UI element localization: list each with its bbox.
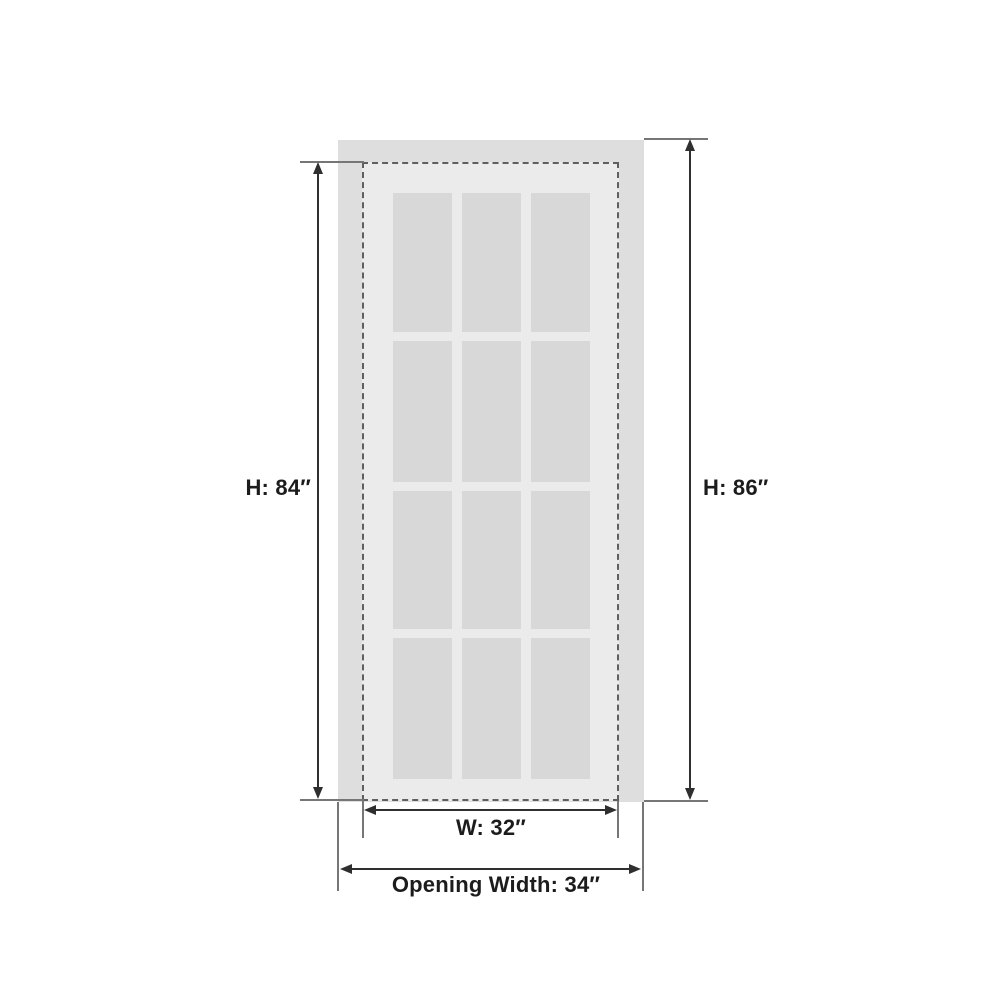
glass-pane-5 — [462, 341, 521, 482]
arrow-right-icon — [605, 805, 617, 815]
glass-pane-2 — [462, 193, 521, 332]
glass-pane-11 — [462, 638, 521, 779]
dimension-tick-bottom — [300, 799, 364, 801]
glass-pane-grid — [393, 193, 590, 779]
glass-pane-8 — [462, 491, 521, 629]
dimension-tick-left — [337, 802, 339, 891]
dimension-tick-bottom — [644, 800, 708, 802]
door-width-label: W: 32″ — [391, 814, 591, 842]
door-slab-outline — [362, 162, 619, 801]
arrow-down-icon — [313, 787, 323, 799]
opening-height-label: H: 86″ — [703, 474, 833, 502]
door-dimension-diagram: H: 84″ H: 86″ W: 32″ Opening Width: 34″ — [0, 0, 1000, 1000]
opening-width-label: Opening Width: 34″ — [346, 871, 646, 899]
glass-pane-12 — [531, 638, 590, 779]
glass-pane-6 — [531, 341, 590, 482]
dimension-line — [689, 148, 691, 793]
glass-pane-3 — [531, 193, 590, 332]
glass-pane-1 — [393, 193, 452, 332]
glass-pane-9 — [531, 491, 590, 629]
dimension-tick-top — [644, 138, 708, 140]
arrow-left-icon — [364, 805, 376, 815]
glass-pane-4 — [393, 341, 452, 482]
arrow-up-icon — [685, 139, 695, 151]
dimension-line — [372, 809, 608, 811]
dimension-tick-right — [617, 801, 619, 838]
glass-pane-7 — [393, 491, 452, 629]
dimension-tick-top — [300, 161, 364, 163]
arrow-up-icon — [313, 162, 323, 174]
dimension-line — [348, 868, 633, 870]
door-height-label: H: 84″ — [181, 474, 311, 502]
arrow-down-icon — [685, 788, 695, 800]
glass-pane-10 — [393, 638, 452, 779]
dimension-line — [317, 170, 319, 793]
